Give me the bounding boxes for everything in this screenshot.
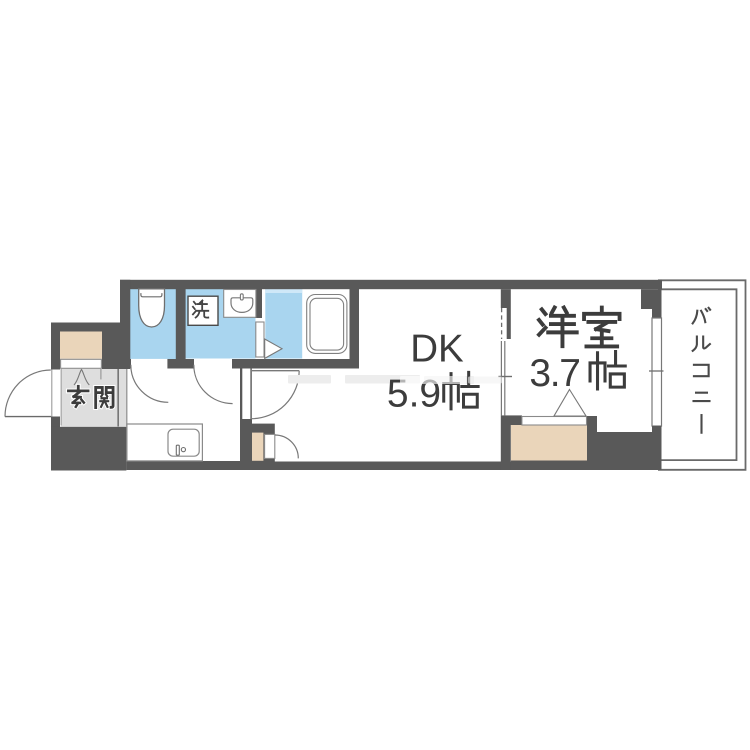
svg-text:DK: DK <box>410 328 464 371</box>
svg-text:3.7: 3.7 <box>529 352 579 395</box>
